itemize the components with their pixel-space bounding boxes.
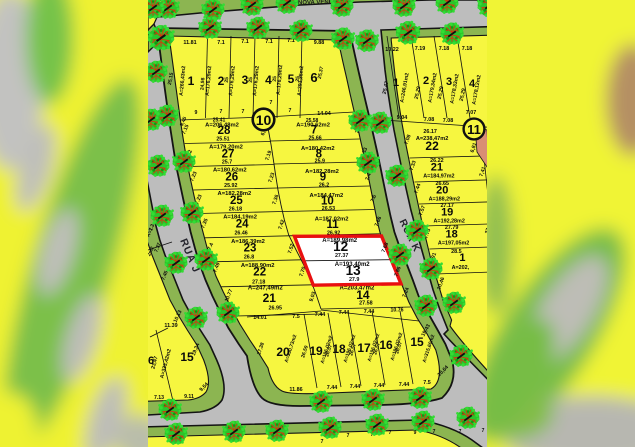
svg-text:9.88: 9.88	[314, 40, 325, 46]
svg-text:7.18: 7.18	[462, 46, 473, 52]
svg-text:7.5: 7.5	[292, 314, 300, 320]
svg-text:11.39: 11.39	[164, 323, 177, 329]
svg-text:7: 7	[289, 108, 292, 114]
svg-text:27.9: 27.9	[349, 277, 360, 283]
svg-text:22: 22	[253, 267, 266, 279]
svg-text:22: 22	[425, 139, 439, 153]
svg-text:25.66: 25.66	[308, 136, 321, 142]
svg-text:9.04: 9.04	[397, 115, 408, 121]
svg-text:A=184,97m2: A=184,97m2	[423, 174, 454, 180]
svg-text:7: 7	[321, 439, 324, 445]
svg-text:27.37: 27.37	[335, 253, 349, 259]
svg-text:1: 1	[188, 74, 195, 88]
svg-text:26.17: 26.17	[423, 129, 437, 135]
svg-text:26.8: 26.8	[244, 255, 254, 261]
svg-text:26.2: 26.2	[319, 183, 329, 189]
svg-text:10.76: 10.76	[391, 308, 404, 314]
svg-text:7.5: 7.5	[423, 380, 431, 386]
svg-text:A=197,05m2: A=197,05m2	[438, 241, 469, 247]
svg-text:28: 28	[218, 125, 231, 137]
svg-text:7: 7	[459, 429, 462, 435]
svg-text:7.08: 7.08	[424, 117, 435, 123]
svg-text:7.1: 7.1	[241, 39, 249, 45]
svg-text:2: 2	[423, 75, 429, 87]
svg-text:25: 25	[230, 195, 243, 207]
svg-text:7.44: 7.44	[350, 384, 361, 390]
svg-text:7: 7	[482, 428, 485, 434]
svg-text:21: 21	[431, 162, 443, 174]
svg-text:7.18: 7.18	[439, 46, 450, 52]
svg-text:7.44: 7.44	[327, 385, 338, 391]
svg-text:12: 12	[333, 239, 348, 254]
svg-text:A=188,29m2: A=188,29m2	[429, 197, 460, 203]
svg-text:7.1: 7.1	[217, 40, 225, 46]
svg-text:11: 11	[467, 122, 481, 137]
svg-text:25.9: 25.9	[315, 159, 325, 165]
svg-text:7.13: 7.13	[154, 395, 164, 401]
svg-text:7.07: 7.07	[466, 110, 477, 116]
svg-text:26.18: 26.18	[229, 206, 242, 212]
svg-text:25.92: 25.92	[224, 183, 237, 189]
svg-text:18: 18	[445, 229, 457, 241]
svg-text:7: 7	[270, 100, 273, 106]
svg-text:7.19: 7.19	[415, 46, 426, 52]
svg-text:7.08: 7.08	[443, 118, 454, 124]
svg-text:6: 6	[148, 355, 154, 367]
svg-text:25.51: 25.51	[216, 136, 229, 142]
svg-text:10.22: 10.22	[385, 47, 399, 53]
svg-text:21: 21	[263, 291, 277, 305]
svg-text:7: 7	[389, 430, 392, 436]
svg-text:A=192,28m2: A=192,28m2	[434, 219, 465, 225]
svg-text:25.7: 25.7	[222, 159, 232, 165]
svg-text:24: 24	[236, 218, 249, 230]
svg-text:14.04: 14.04	[317, 111, 331, 117]
svg-text:19: 19	[441, 207, 453, 219]
svg-text:7: 7	[433, 429, 436, 435]
svg-text:26.46: 26.46	[234, 231, 247, 237]
svg-text:14.01: 14.01	[253, 315, 267, 321]
svg-text:11.86: 11.86	[289, 387, 302, 393]
svg-text:A=202,: A=202,	[452, 265, 470, 271]
svg-text:20: 20	[436, 185, 448, 197]
svg-text:1: 1	[393, 77, 399, 89]
svg-text:7: 7	[220, 109, 223, 115]
svg-text:7.44: 7.44	[399, 382, 410, 388]
svg-text:7: 7	[347, 433, 350, 439]
svg-text:7.44: 7.44	[374, 383, 385, 389]
svg-text:26: 26	[225, 171, 238, 183]
svg-text:5: 5	[288, 72, 295, 86]
svg-text:10: 10	[256, 112, 272, 128]
svg-text:7.44: 7.44	[339, 310, 350, 316]
svg-text:9: 9	[414, 430, 417, 436]
svg-text:26.53: 26.53	[322, 206, 335, 212]
svg-text:27.58: 27.58	[359, 301, 373, 307]
svg-text:9.11: 9.11	[184, 394, 194, 400]
svg-text:3: 3	[446, 76, 452, 88]
svg-text:23: 23	[244, 243, 257, 255]
svg-text:7.44: 7.44	[315, 312, 326, 318]
svg-text:11.81: 11.81	[183, 40, 196, 46]
svg-text:13: 13	[346, 263, 362, 278]
svg-text:9: 9	[195, 110, 198, 116]
svg-text:11: 11	[327, 219, 340, 231]
svg-text:7: 7	[242, 109, 245, 115]
svg-text:26.95: 26.95	[269, 305, 283, 311]
svg-text:7.1: 7.1	[265, 39, 273, 45]
svg-text:1: 1	[459, 252, 465, 264]
svg-text:15: 15	[410, 335, 424, 349]
